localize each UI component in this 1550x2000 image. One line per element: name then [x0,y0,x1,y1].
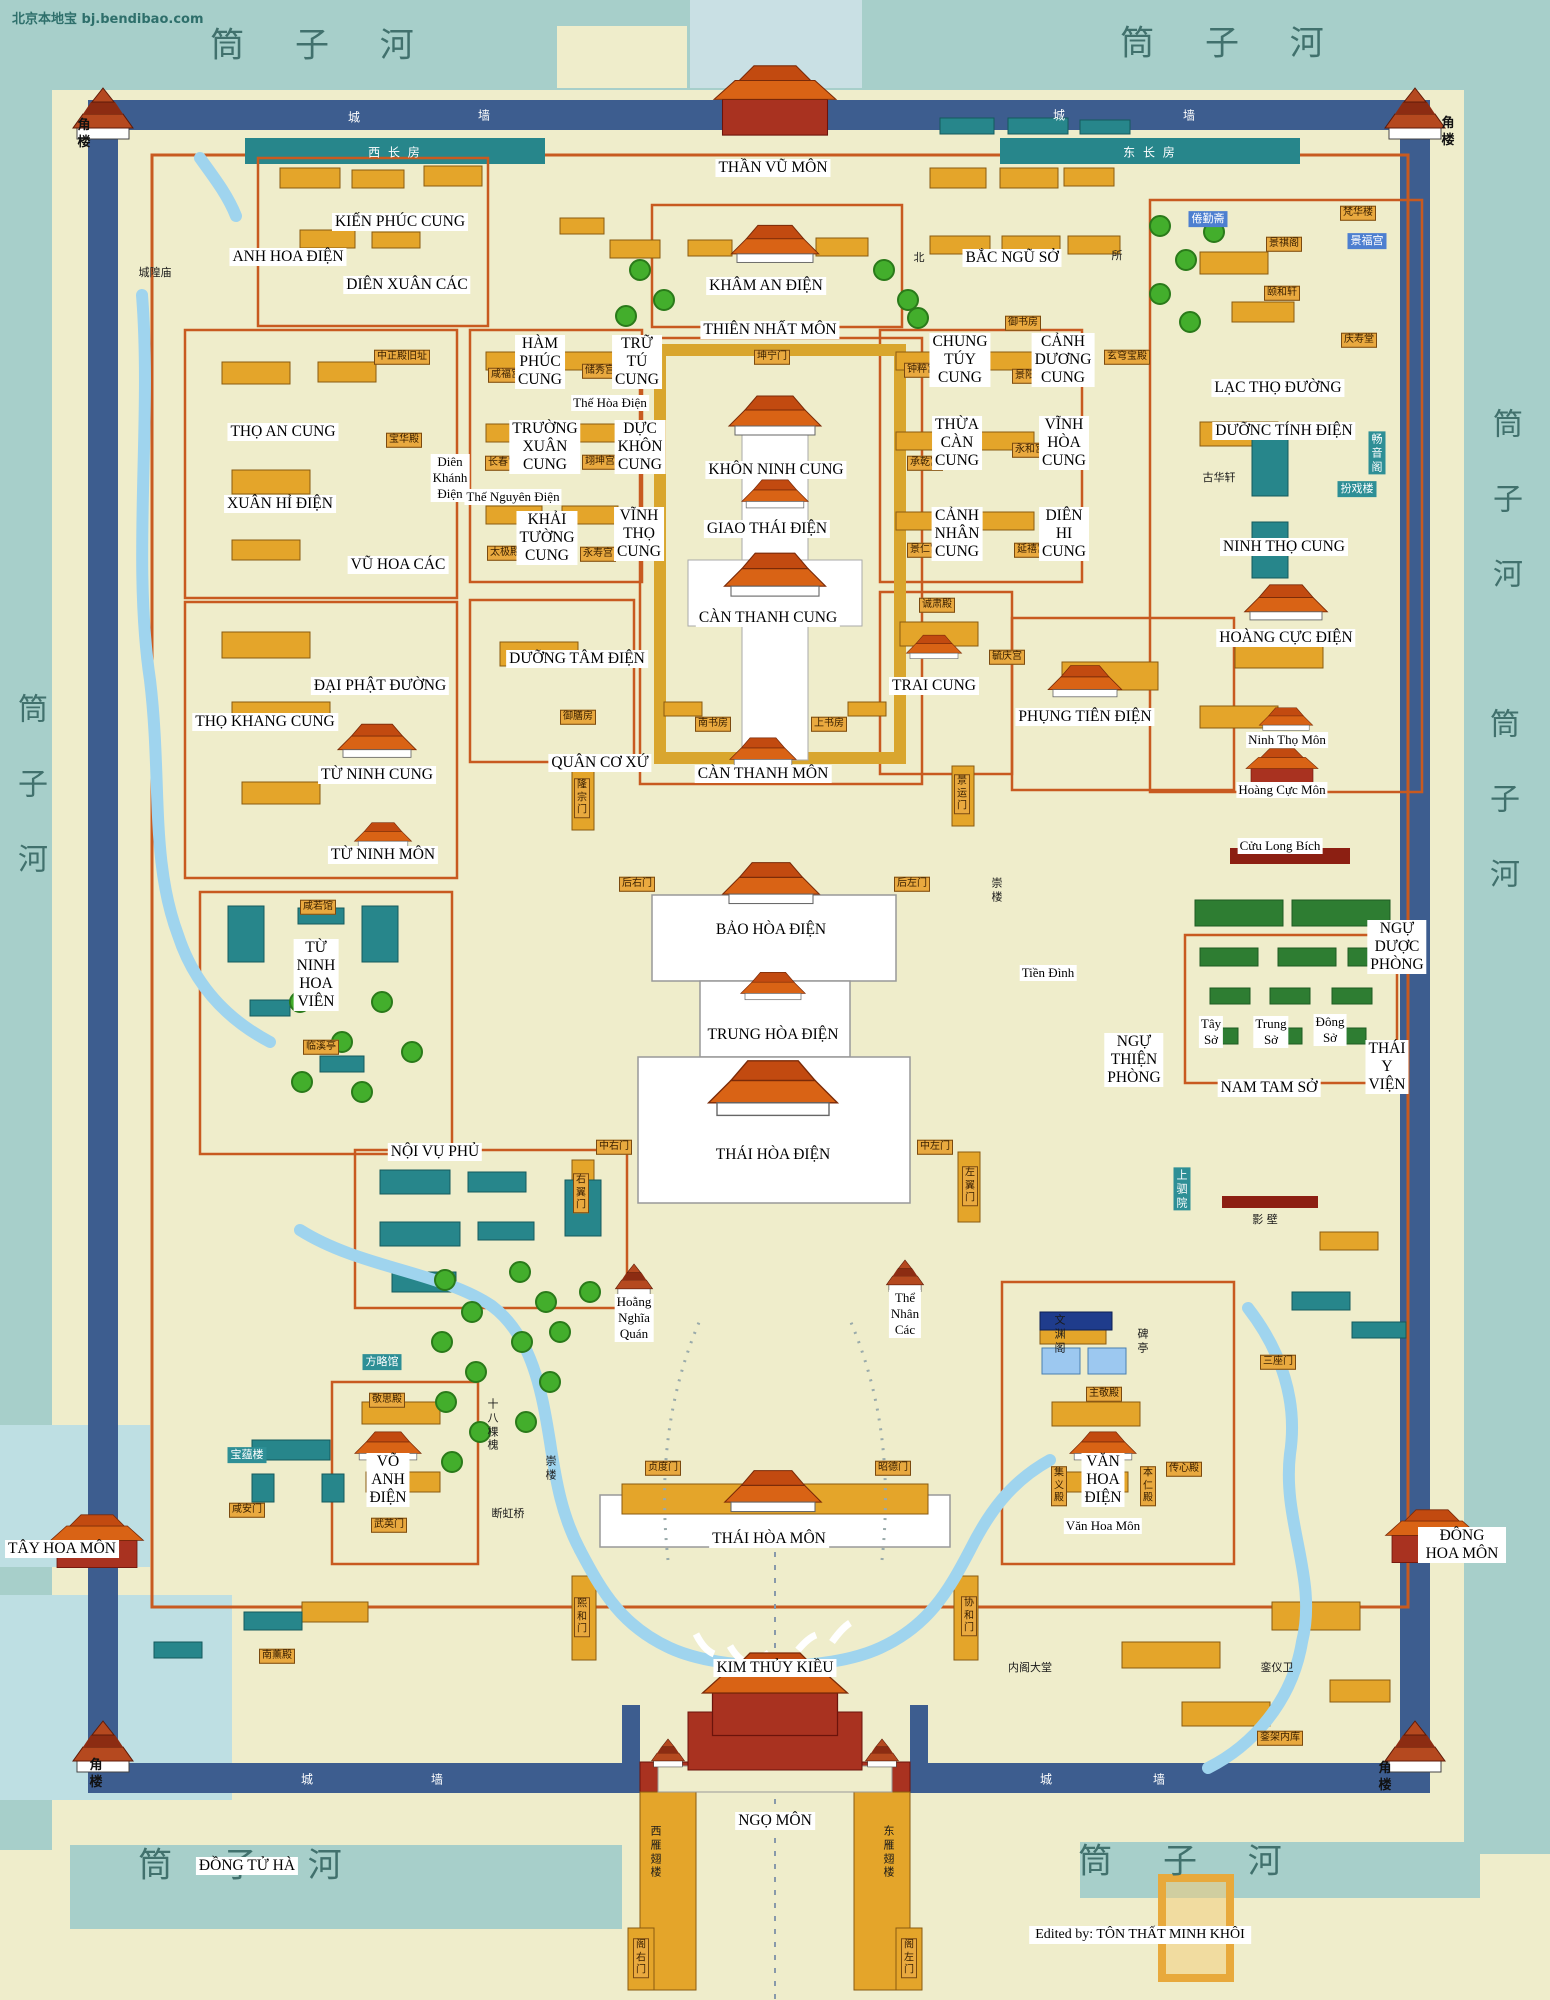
map-label: PHỤNG TIÊN ĐIỆN [1015,708,1154,726]
map-label: 延禧宫 [1014,543,1050,558]
map-label: Tiền Đình [1020,965,1077,981]
map-label: ĐẠI PHẬT ĐƯỜNG [311,677,449,695]
map-label: DỰC KHÔN CUNG [615,420,666,474]
map-label: 颐和轩 [1264,286,1300,301]
map-label: 城 [301,1771,315,1788]
map-label: 方略馆 [363,1354,402,1370]
map-label: TỪ NINH MÔN [328,846,438,864]
label-layer: 筒 子 河筒 子 河筒 子 河筒 子 河筒 子 河筒 子 河筒 子 河角 楼角 … [0,0,1550,2000]
map-label: ĐÔNG HOA MÔN [1418,1527,1506,1563]
map-label: 所 [1112,249,1123,263]
map-label: 梵华楼 [1340,206,1376,221]
map-label: 庆寿堂 [1341,333,1377,348]
map-label: 玄穹宝殿 [1104,350,1150,365]
map-label: THỌ KHANG CUNG [192,713,338,731]
map-label: Tây Sở [1199,1016,1223,1048]
map-label: 景福宫 [1348,233,1387,249]
map-label: Trung Sở [1253,1016,1288,1048]
map-label: 古华轩 [1203,471,1236,485]
map-label: 翊坤宫 [582,455,618,470]
map-label: ĐỒNG TỬ HÀ [196,1857,298,1875]
map-label: 碑 亭 [1138,1327,1149,1355]
map-label: 御膳房 [560,710,596,725]
map-label: 敬思殿 [369,1393,405,1408]
map-label: 城隍庙 [139,266,172,280]
map-label: 影 壁 [1252,1213,1278,1227]
map-label: 贞度门 [645,1461,681,1476]
map-label: THIÊN NHẤT MÔN [700,321,839,339]
map-label: 崇 楼 [546,1454,557,1482]
map-label: VÕ ANH ĐIỆN [366,1453,409,1507]
map-label: 上 驷 院 [1174,1167,1191,1210]
map-label: THỪA CÀN CUNG [932,416,982,470]
map-label: 右 翼 门 [573,1173,589,1213]
map-label: 文 渊 阁 [1055,1313,1066,1354]
map-label: 三座门 [1260,1355,1296,1370]
map-label: Văn Hoa Môn [1064,1518,1142,1534]
map-label: 筒 子 河 [138,1838,362,1887]
map-label: 銮仪卫 [1261,1661,1294,1675]
map-label: 毓庆宫 [989,650,1025,665]
map-label: 景仁宫 [907,543,943,558]
map-label: Hoằng Nghĩa Quán [615,1294,654,1342]
map-label: CÀN THANH CUNG [696,609,840,627]
map-label: 筒 子 河 [1120,16,1344,65]
map-label: 内阁大堂 [1008,1661,1052,1675]
map-label: TỪ NINH CUNG [318,766,436,784]
map-label: 南书房 [695,717,731,732]
map-label: 左 翼 门 [962,1166,978,1206]
map-label: 临溪亭 [303,1040,339,1055]
map-label: DƯỠNG TÂM ĐIỆN [506,650,648,668]
map-label: THÁI Y VIỆN [1365,1040,1408,1094]
map-label: DIÊN HI CUNG [1039,507,1089,561]
map-label: Thể Nhân Các [889,1290,921,1338]
map-label: 断虹桥 [492,1507,525,1521]
map-label: 承乾宫 [907,456,943,471]
map-label: 倦勤斋 [1189,211,1228,227]
map-label: 武英门 [371,1518,407,1533]
map-label: 墙 [1153,1771,1167,1788]
map-label: Hoàng Cực Môn [1236,782,1327,798]
map-label: CHUNG TÚY CUNG [929,333,990,387]
map-label: NAM TAM SỞ [1218,1079,1321,1097]
map-label: HÀM PHÚC CUNG [515,335,565,389]
map-label: 咸福宫 [488,368,524,383]
map-label: VŨ HOA CÁC [348,556,449,574]
map-label: 长春宫 [485,456,521,471]
map-label: 角 楼 [1378,1761,1391,1795]
map-label: 景 运 门 [954,774,970,814]
map-label: CÀN THANH MÔN [695,765,832,783]
map-label: 筒 子 河 [210,18,434,67]
map-label: 永寿宫 [580,547,616,562]
forbidden-city-map: 筒 子 河筒 子 河筒 子 河筒 子 河筒 子 河筒 子 河筒 子 河角 楼角 … [0,0,1550,2000]
map-label: 扮戏楼 [1338,481,1377,497]
map-label: 熙 和 门 [574,1597,590,1637]
map-label: 集 义 殿 [1051,1466,1067,1506]
map-label: NGỌ MÔN [735,1812,815,1830]
map-label: Diên Khánh Điện [431,454,470,502]
map-label: 中正殿旧址 [374,350,430,365]
map-label: DƯỠNC TÍNH ĐIỆN [1212,422,1355,440]
map-label: 永和宫 [1012,443,1048,458]
map-label: 十 八 棵 槐 [488,1398,499,1453]
map-label: Thế Nguyên Điện [464,489,561,505]
map-label: 钟粹宫 [904,363,940,378]
map-label: VĨNH THỌ CUNG [614,507,664,561]
map-label: 咸若馆 [300,900,336,915]
map-label: CẢNH DƯƠNG CUNG [1032,333,1095,387]
map-label: 墙 [431,1771,445,1788]
map-label: BẮC NGŨ SỞ [962,249,1061,267]
map-label: THẦN VŨ MÔN [715,159,830,177]
map-label: 东 长 房 [1123,144,1177,161]
map-label: 中左门 [917,1140,953,1155]
map-label: 筒 子 河 [1078,1834,1302,1883]
map-label: 西 长 房 [368,144,422,161]
map-label: NINH THỌ CUNG [1220,538,1348,556]
map-label: BẢO HÒA ĐIỆN [713,921,829,939]
map-label: 坤宁门 [754,350,790,365]
map-label: Ninh Thọ Môn [1246,732,1328,748]
map-label: 角 楼 [89,1758,102,1792]
map-label: 北 [914,251,925,265]
map-label: 中右门 [596,1140,632,1155]
map-label: TỪ NINH HOA VIÊN [294,939,339,1011]
map-label: 传心殿 [1166,1462,1202,1477]
map-label: 角 楼 [1441,116,1454,150]
map-label: 城 [348,109,362,126]
map-label: NGỰ THIỆN PHÒNG [1104,1033,1163,1087]
map-label: TRUNG HÒA ĐIỆN [705,1026,842,1044]
map-label: THÁI HÒA MÔN [709,1530,829,1548]
map-label: 阁 左 门 [901,1938,917,1978]
map-label: 筒 子 河 [1493,388,1523,613]
map-label: 銮架内库 [1257,1731,1303,1746]
map-label: 隆 宗 门 [574,778,590,818]
map-label: 宝蕴楼 [228,1447,267,1463]
map-label: TRỮ TÚ CUNG [612,335,662,389]
map-label: THÁI HÒA ĐIỆN [713,1146,834,1164]
map-label: VĨNH HÒA CUNG [1039,416,1089,470]
map-label: TRƯỜNG XUÂN CUNG [509,420,580,474]
map-label: 东 雁 翅 楼 [884,1825,895,1880]
map-label: LẠC THỌ ĐƯỜNG [1211,379,1344,397]
map-label: KHÔN NINH CUNG [705,461,846,479]
map-label: 本 仁 殿 [1140,1466,1156,1506]
map-label: 储秀宫 [582,364,618,379]
map-label: 昭德门 [875,1461,911,1476]
map-label: THỌ AN CUNG [227,423,338,441]
map-label: NỘI VỤ PHỦ [388,1143,482,1161]
map-label: 畅 音 阁 [1369,431,1386,474]
map-label: 景阳宫 [1012,369,1048,384]
map-label: 宝华殿 [386,433,422,448]
map-label: 墙 [1183,107,1197,124]
map-label: 筒 子 河 [18,673,48,898]
map-label: XUÂN HỈ ĐIỆN [224,495,336,513]
map-label: 协 和 门 [961,1596,977,1636]
map-label: 主敬殿 [1086,1387,1122,1402]
map-label: 御书房 [1005,316,1041,331]
map-label: GIAO THÁI ĐIỆN [704,520,830,538]
map-label: NGỰ DƯỢC PHÒNG [1367,920,1426,974]
map-label: 筒 子 河 [1490,688,1520,913]
map-label: 南薰殿 [259,1649,295,1664]
map-label: QUÂN CƠ XỨ [548,754,651,772]
map-label: 景祺阁 [1266,237,1302,252]
map-label: 墙 [478,107,492,124]
map-label: TÂY HOA MÔN [5,1540,119,1558]
map-label: HOÀNG CỰC ĐIỆN [1216,629,1355,647]
map-label: 城 [1040,1771,1054,1788]
map-label: 阁 右 门 [633,1938,649,1978]
map-label: 城 [1053,107,1067,124]
map-label: ANH HOA ĐIỆN [229,248,346,266]
map-label: 咸安门 [229,1503,265,1518]
map-label: 诚肃殿 [919,598,955,613]
map-label: VĂN HOA ĐIỆN [1081,1453,1124,1507]
map-label: 后右门 [619,877,655,892]
map-label: 角 楼 [77,118,90,152]
map-label: 太极殿 [487,546,523,561]
map-label: 上书房 [811,717,847,732]
map-label: KIM THỦY KIỀU [713,1659,836,1677]
map-label: Đông Sở [1314,1014,1347,1046]
map-label: 西 雁 翅 楼 [651,1825,662,1880]
map-label: 后左门 [894,877,930,892]
map-label: TRAI CUNG [889,677,979,695]
map-label: DIÊN XUÂN CÁC [343,276,470,294]
map-label: Cửu Long Bích [1238,838,1323,854]
map-label: KHẢI TƯỜNG CUNG [516,511,577,565]
map-label: KIẾN PHÚC CUNG [332,213,468,231]
map-label: 崇 楼 [992,876,1003,904]
map-label: CẢNH NHÂN CUNG [932,507,983,561]
map-label: KHÂM AN ĐIỆN [706,277,826,295]
map-label: Thế Hòa Điện [571,395,649,411]
